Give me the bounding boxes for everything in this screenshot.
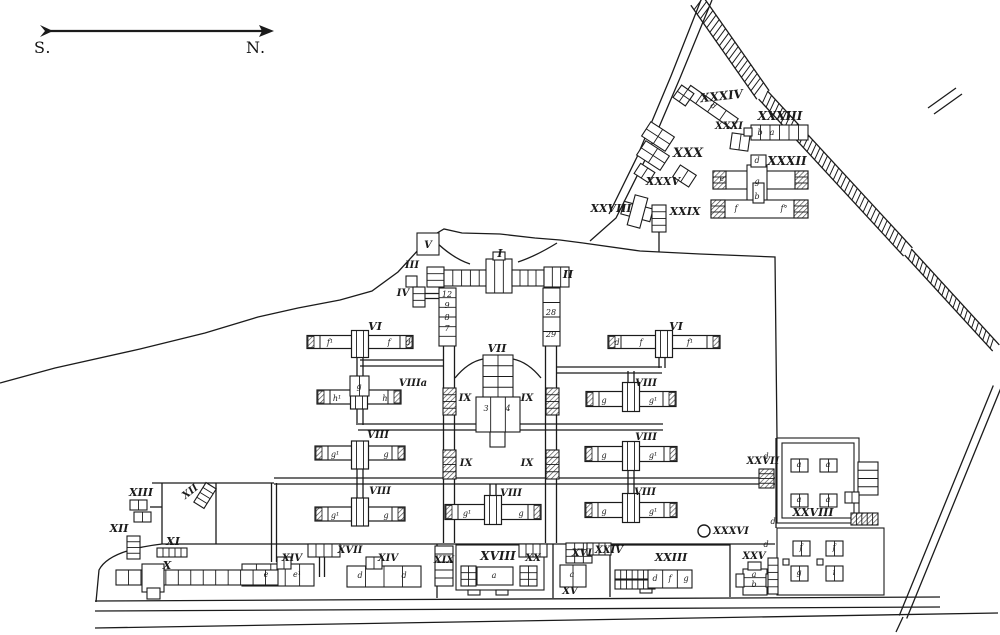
road-southeast bbox=[899, 385, 1000, 618]
room-letter: e bbox=[720, 174, 725, 183]
building-label: XXX bbox=[672, 146, 704, 161]
room-letter: b bbox=[751, 580, 756, 589]
compass-south-label: S. bbox=[34, 38, 51, 57]
room-letter: g¹ bbox=[649, 507, 657, 516]
room-letter: g¹ bbox=[331, 450, 339, 459]
road-east-hatched bbox=[905, 249, 1000, 351]
corridor-link-nw bbox=[360, 360, 444, 366]
building-xxv-left bbox=[736, 574, 744, 587]
building-ix-1 bbox=[443, 388, 456, 415]
room-letter: d bbox=[754, 156, 759, 165]
road-bottom-1 bbox=[95, 597, 940, 601]
room-letter: f¹ bbox=[686, 338, 693, 347]
room-letter: d bbox=[401, 571, 406, 580]
building-xiii-1 bbox=[130, 500, 147, 510]
building-label: VIII bbox=[500, 488, 522, 499]
enclosure-a-attach-2 bbox=[845, 492, 859, 503]
road-se-extension bbox=[896, 617, 903, 632]
building-label: XXVII bbox=[746, 456, 780, 467]
room-letter: a bbox=[492, 571, 497, 580]
room-letter: g bbox=[601, 507, 606, 516]
room-letter: a bbox=[752, 570, 757, 579]
room-letter: g¹ bbox=[463, 509, 471, 518]
ward-viii-right-mid bbox=[585, 442, 677, 471]
room-letter: d bbox=[357, 571, 362, 580]
building-label: VIII bbox=[634, 487, 656, 498]
enclosure-a-attach-1 bbox=[858, 462, 878, 495]
building-label: VIII bbox=[635, 378, 657, 389]
room-letter: d bbox=[614, 338, 619, 347]
building-ix-3 bbox=[443, 450, 456, 479]
road-branch-2 bbox=[934, 94, 962, 114]
room-letter: d bbox=[763, 540, 768, 549]
building-label: X bbox=[162, 559, 172, 572]
room-letter: g bbox=[601, 451, 606, 460]
corridor-link-ne bbox=[556, 367, 662, 373]
room-letter: 29 bbox=[545, 330, 556, 339]
building-vii-tower bbox=[483, 355, 513, 398]
room-letter: e bbox=[264, 570, 269, 579]
building-xviii-tab-1 bbox=[468, 590, 480, 595]
room-letter: a bbox=[797, 495, 802, 504]
building-label: XIV bbox=[281, 553, 303, 564]
building-xxxiii-attach bbox=[744, 128, 752, 136]
building-xxxvi-circle bbox=[698, 525, 710, 537]
building-xxiii-tab bbox=[640, 589, 652, 593]
room-letter: b bbox=[754, 192, 759, 201]
building-label: XXXI bbox=[714, 121, 743, 132]
building-label: XXVIII bbox=[589, 202, 632, 215]
road-bottom-2 bbox=[95, 607, 940, 611]
building-xii-diagonal bbox=[194, 483, 216, 509]
site-plan-page: f¹fddff¹h¹ghgg¹g¹ggg¹g¹gg¹ggg¹ee¹ddaadfg… bbox=[0, 0, 1000, 635]
room-letter: 3 bbox=[483, 404, 488, 413]
road-branch-1 bbox=[928, 88, 956, 108]
corridor-south bbox=[274, 478, 775, 484]
building-label: XXVIII bbox=[791, 506, 834, 519]
building-label: VIIIa bbox=[399, 378, 427, 389]
ward-viii-center-low bbox=[445, 496, 541, 525]
building-label: IV bbox=[396, 288, 411, 299]
building-xviii-cells-left bbox=[461, 566, 476, 586]
room-letter: f° bbox=[780, 204, 788, 213]
ward-vi-right bbox=[608, 331, 720, 358]
building-label: XXXIV bbox=[699, 87, 746, 106]
building-label: XXXII bbox=[766, 154, 807, 168]
room-letter: g bbox=[754, 177, 759, 186]
room-letter: d bbox=[652, 574, 657, 583]
building-label: XVII bbox=[337, 545, 363, 556]
gate-curve-right bbox=[518, 243, 557, 262]
room-letter: g bbox=[383, 511, 388, 520]
room-letter: e¹ bbox=[293, 570, 301, 579]
building-label: VII bbox=[488, 342, 508, 355]
room-letter: g bbox=[518, 509, 523, 518]
building-label: III bbox=[404, 260, 419, 271]
building-label: XXIX bbox=[669, 205, 701, 218]
building-xii-left bbox=[127, 536, 140, 559]
building-label: XIII bbox=[128, 486, 154, 499]
building-label: IX bbox=[458, 393, 473, 404]
room-letter: 4 bbox=[504, 404, 510, 413]
corridor-xiv bbox=[272, 483, 277, 562]
compass-north-label: N. bbox=[246, 38, 266, 57]
building-iii bbox=[406, 276, 417, 287]
enclosure-b-outer bbox=[777, 528, 884, 595]
building-xviii-tab-2 bbox=[496, 590, 508, 595]
ward-viii-right-low bbox=[585, 494, 677, 523]
room-letter: h bbox=[382, 394, 387, 403]
building-label: XXXIII bbox=[757, 109, 803, 123]
building-label: VIII bbox=[369, 486, 391, 497]
building-label: VI bbox=[368, 320, 383, 333]
building-x-bar bbox=[116, 570, 278, 585]
building-label: XII bbox=[109, 522, 130, 535]
building-label: IX bbox=[459, 458, 474, 469]
building-xix bbox=[435, 546, 453, 586]
building-xxvii bbox=[759, 469, 774, 488]
room-letter: b bbox=[757, 128, 762, 137]
building-label: II bbox=[562, 268, 574, 281]
ward-vi-left bbox=[307, 331, 413, 358]
building-label: XX bbox=[524, 553, 542, 564]
building-label: XI bbox=[165, 535, 181, 548]
boundary-west bbox=[0, 236, 432, 383]
room-letter: a bbox=[770, 128, 775, 137]
chapel-curve-left bbox=[455, 359, 483, 378]
building-xxxii-lend-right bbox=[794, 200, 808, 218]
building-label: XXIII bbox=[654, 551, 688, 564]
room-letter: i bbox=[833, 568, 836, 577]
room-letter: d bbox=[770, 517, 775, 526]
building-label: I bbox=[496, 247, 503, 260]
entrance-block-west bbox=[427, 267, 444, 287]
building-xxxii-lend-left bbox=[711, 200, 725, 218]
gate-building bbox=[486, 259, 512, 293]
room-letter: h¹ bbox=[333, 394, 341, 403]
room-letter: g bbox=[796, 568, 801, 577]
chapel-curve-right bbox=[513, 359, 541, 378]
enclosure-b-wall-cells bbox=[768, 558, 778, 594]
enclosure-b-mark-1 bbox=[783, 559, 789, 565]
room-letter: 8 bbox=[444, 313, 449, 322]
building-label: XVIII bbox=[479, 549, 516, 563]
site-plan-map: f¹fddff¹h¹ghgg¹g¹ggg¹g¹gg¹ggg¹ee¹ddaadfg… bbox=[0, 0, 1000, 635]
entrance-cells-left bbox=[444, 270, 488, 286]
room-letter: g bbox=[683, 574, 688, 583]
building-xxxii-end-right bbox=[795, 171, 808, 189]
boundary-top bbox=[432, 229, 583, 243]
enclosure-a-attach-3 bbox=[851, 513, 878, 525]
compass-fletching-icon bbox=[40, 25, 53, 37]
room-letter: g¹ bbox=[331, 511, 339, 520]
room-letter: g bbox=[356, 382, 361, 391]
building-label: VIII bbox=[367, 430, 389, 441]
room-letter: g bbox=[601, 396, 606, 405]
room-letter: g bbox=[383, 450, 388, 459]
room-letter: 28 bbox=[545, 308, 556, 317]
ward-viii-right-upper bbox=[586, 383, 676, 412]
room-letter: 12 bbox=[442, 290, 452, 299]
room-letter: 9 bbox=[444, 301, 449, 310]
room-letter: f¹ bbox=[326, 338, 333, 347]
ward-viii-left-mid bbox=[315, 441, 405, 469]
room-letter: g¹ bbox=[649, 396, 657, 405]
building-xvii bbox=[308, 544, 340, 557]
building-xxix bbox=[652, 205, 666, 232]
room-letter: a bbox=[826, 460, 831, 469]
building-ix-4 bbox=[546, 450, 559, 479]
building-label: VI bbox=[669, 320, 684, 333]
building-vii-stem bbox=[490, 432, 505, 447]
building-vii-base bbox=[476, 397, 520, 432]
building-label: VIII bbox=[635, 432, 657, 443]
building-label: XIX bbox=[433, 555, 455, 566]
building-label: XV bbox=[561, 586, 579, 597]
road-bottom-3 bbox=[95, 613, 998, 628]
building-label: V bbox=[424, 240, 433, 251]
enclosure-b-mark-2 bbox=[817, 559, 823, 565]
ward-viii-left-low bbox=[315, 498, 405, 526]
building-xviii-cells-right bbox=[520, 566, 537, 586]
building-xiii-2 bbox=[134, 512, 151, 522]
room-letter: a bbox=[570, 570, 575, 579]
corridor-xvii bbox=[320, 556, 325, 577]
building-label: XIV bbox=[377, 553, 399, 564]
room-letter: g¹ bbox=[649, 451, 657, 460]
room-letter: d bbox=[405, 338, 410, 347]
building-label: XXXVI bbox=[712, 526, 749, 537]
building-xi bbox=[157, 548, 187, 557]
building-xxv-top bbox=[748, 562, 761, 570]
building-x-foot bbox=[147, 588, 160, 599]
building-label: IX bbox=[520, 393, 535, 404]
building-label: XVI bbox=[571, 548, 593, 559]
building-ix-2 bbox=[546, 388, 559, 415]
room-letter: a bbox=[797, 460, 802, 469]
building-label: IX bbox=[520, 458, 535, 469]
building-iv bbox=[413, 287, 425, 307]
road-north-hatched bbox=[691, 0, 769, 99]
building-label: XXXV bbox=[645, 175, 682, 188]
room-letter: a bbox=[826, 495, 831, 504]
entrance-cells-right bbox=[512, 270, 544, 286]
building-label: XXIV bbox=[594, 545, 624, 556]
compass-arrow bbox=[40, 25, 274, 37]
building-label: XXV bbox=[741, 551, 767, 562]
